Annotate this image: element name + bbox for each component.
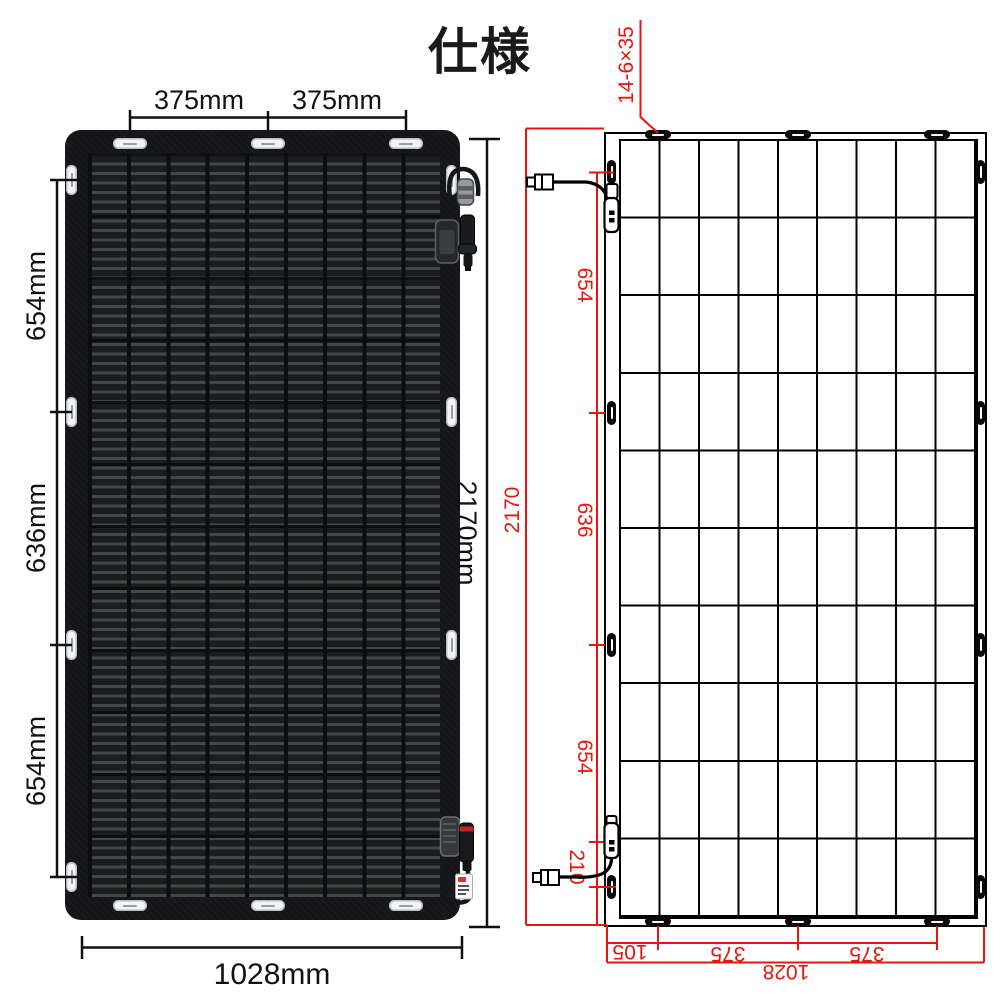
dim-spacing-1: 654: [573, 245, 595, 325]
dim-top-left: 375mm: [144, 86, 254, 114]
solar-cell-texture: [88, 153, 440, 897]
mounting-hole: [251, 138, 285, 149]
hole-spec-leader: [641, 20, 659, 133]
mounting-hole: [251, 900, 285, 911]
mounting-hole: [785, 130, 811, 139]
mc4-connector-icon: [461, 215, 475, 248]
dim-left-2: 636mm: [22, 473, 50, 583]
solar-panel-photo: [65, 130, 460, 920]
mounting-hole: [976, 633, 985, 657]
mounting-hole: [607, 401, 616, 425]
mounting-hole: [607, 633, 616, 657]
mounting-hole: [976, 875, 985, 899]
dim-left-3: 654mm: [22, 706, 50, 816]
mounting-hole: [976, 160, 985, 184]
spec-sheet: 仕様 375mm 375mm 654mm 636mm 654mm 2170mm …: [0, 0, 1000, 1000]
mounting-hole: [113, 900, 147, 911]
mounting-hole: [924, 917, 950, 926]
drawing-cell-grid: [619, 139, 978, 919]
mounting-hole: [924, 130, 950, 139]
dim-bottom-total: 1028: [746, 960, 826, 982]
mounting-hole: [66, 862, 77, 892]
mounting-hole: [113, 138, 147, 149]
mounting-hole: [66, 165, 77, 195]
mc4-connector-icon: [460, 823, 474, 862]
mounting-hole: [389, 900, 423, 911]
hole-spec-label: 14-6×35: [616, 10, 638, 120]
mc4-connector-icon: [527, 178, 535, 187]
dim-right-height: 2170mm: [453, 471, 481, 595]
mounting-hole: [976, 401, 985, 425]
dim-top-right: 375mm: [282, 86, 392, 114]
dim-left-1: 654mm: [22, 241, 50, 351]
mounting-hole: [66, 630, 77, 660]
mounting-hole: [785, 917, 811, 926]
cable: [467, 861, 468, 876]
mounting-hole: [607, 875, 616, 899]
dim-spacing-2: 636: [573, 480, 595, 560]
dim-bottom-span-2: 375: [837, 942, 897, 964]
mounting-hole: [446, 165, 457, 195]
dim-junction-offset: 210: [565, 827, 587, 907]
cable: [552, 182, 608, 200]
dim-bottom-width: 1028mm: [187, 960, 357, 990]
mounting-hole: [66, 397, 77, 427]
mounting-hole: [645, 130, 671, 139]
mounting-hole: [389, 138, 423, 149]
mounting-hole: [645, 917, 671, 926]
mounting-hole: [607, 160, 616, 184]
dim-spacing-3: 654: [573, 717, 595, 797]
dim-bottom-offset: 105: [600, 940, 660, 962]
mc4-connector-icon: [541, 870, 559, 885]
mounting-hole: [446, 630, 457, 660]
mounting-hole: [446, 397, 457, 427]
dim-outer-height: 2170: [502, 470, 524, 550]
page-title: 仕様: [380, 12, 580, 84]
